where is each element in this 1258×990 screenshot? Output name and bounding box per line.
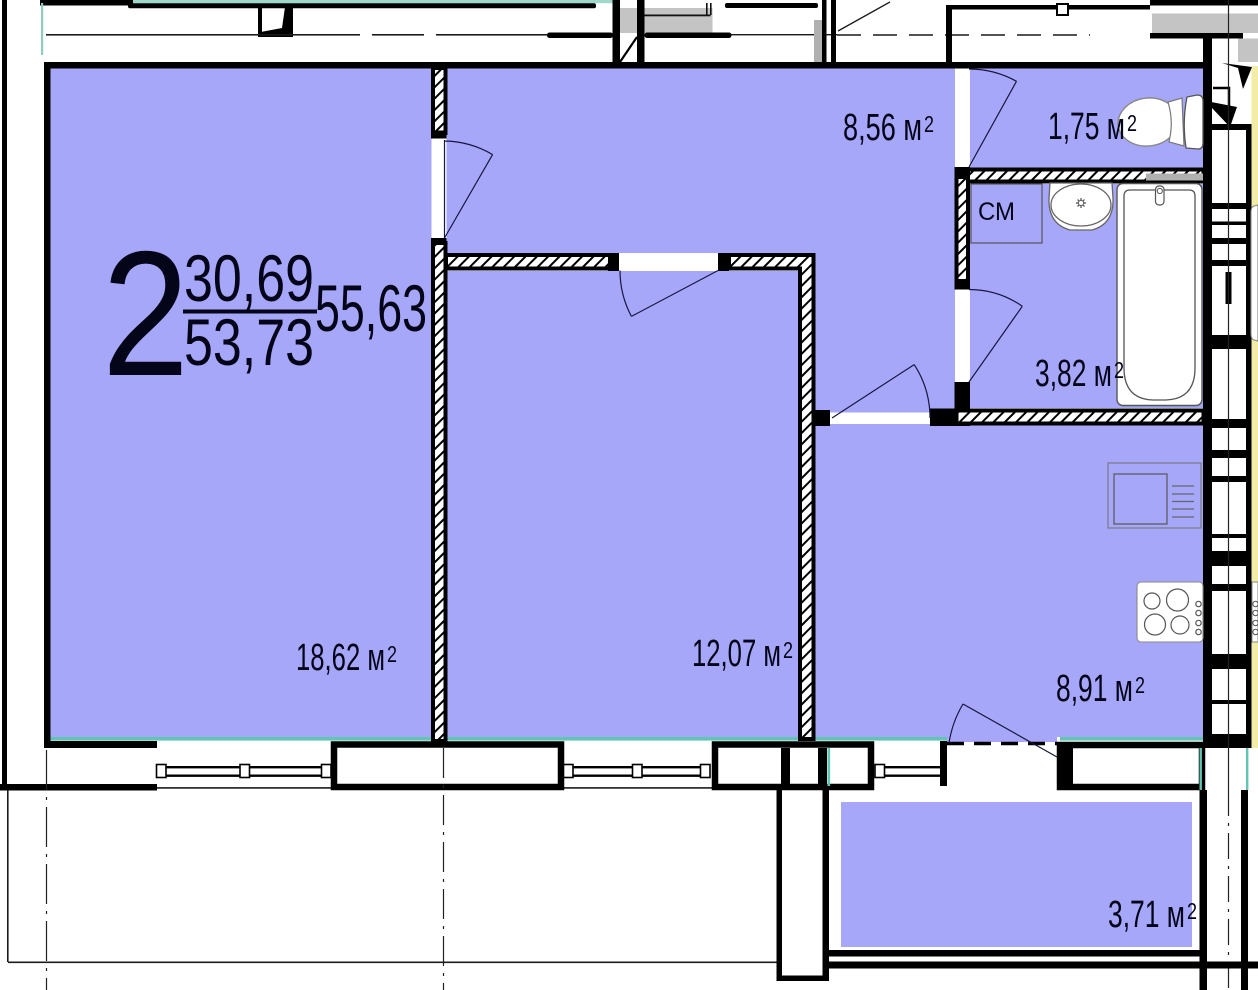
svg-text:2: 2	[387, 641, 397, 667]
svg-text:2: 2	[1187, 898, 1197, 924]
svg-text:53,73: 53,73	[184, 305, 314, 379]
svg-text:12,07 м: 12,07 м	[692, 633, 781, 675]
svg-text:1,75 м: 1,75 м	[1048, 106, 1125, 148]
svg-text:2: 2	[1127, 110, 1137, 136]
svg-text:8,91 м: 8,91 м	[1056, 668, 1133, 710]
svg-text:3,82 м: 3,82 м	[1035, 353, 1112, 395]
svg-text:СМ: СМ	[978, 198, 1015, 226]
svg-text:55,63: 55,63	[315, 271, 427, 345]
svg-text:2: 2	[1114, 357, 1124, 383]
svg-text:2: 2	[924, 111, 934, 137]
svg-text:2: 2	[1135, 672, 1145, 698]
svg-text:18,62 м: 18,62 м	[296, 637, 385, 679]
svg-text:8,56 м: 8,56 м	[843, 107, 922, 149]
svg-text:2: 2	[783, 637, 793, 663]
svg-text:30,69: 30,69	[184, 241, 314, 315]
svg-text:2: 2	[102, 214, 189, 413]
svg-text:3,71 м: 3,71 м	[1108, 894, 1185, 936]
